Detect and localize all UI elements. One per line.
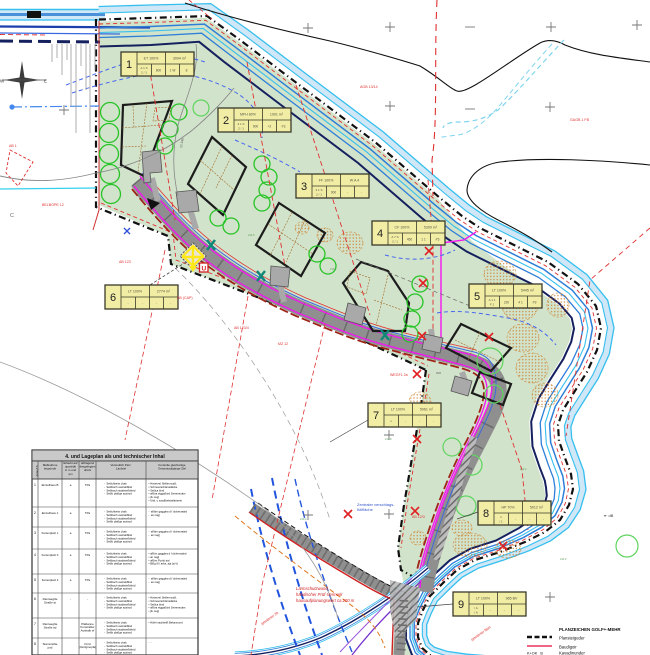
svg-text:800: 800 (156, 69, 162, 73)
svg-text:-: - (529, 518, 530, 522)
svg-text:E: E (44, 79, 47, 84)
svg-text:- Setlibach stadtsteßährtd: - Setlibach stadtsteßährtd (104, 602, 136, 606)
svg-text:-: - (347, 191, 348, 195)
svg-text:8: 8 (483, 508, 489, 520)
svg-text:AB (CAP): AB (CAP) (177, 296, 193, 300)
svg-text:- Setlib plaßge austrod: - Setlib plaßge austrod (104, 540, 132, 544)
svg-text:W A 4: W A 4 (350, 179, 359, 183)
svg-text:• Schneuzachärsteläcke: • Schneuzachärsteläcke (149, 599, 178, 603)
svg-text:- Setlichkeits chab.: - Setlichkeits chab. (104, 530, 128, 534)
svg-text:8: 8 (34, 642, 36, 646)
svg-text:- Setlibach usstratißbel: - Setlibach usstratißbel (104, 555, 132, 559)
svg-text:F9: F9 (533, 301, 537, 305)
svg-text:- Setlib plaßge austrod: - Setlib plaßge austrod (104, 562, 132, 566)
svg-text:900: 900 (253, 125, 259, 129)
svg-text:900: 900 (331, 191, 337, 195)
svg-text:LT 100%: LT 100% (391, 408, 406, 412)
svg-text:• Bißg iß l arba. aja [st k]: • Bißg iß l arba. aja [st k] (149, 562, 178, 566)
svg-text:händischer Prüf-Vermerk: händischer Prüf-Vermerk (296, 592, 343, 597)
svg-text:• jfu neg]: • jfu neg] (149, 609, 160, 613)
svg-text:• Setlica bind: • Setlica bind (149, 488, 165, 492)
svg-text:4: 4 (34, 553, 36, 557)
svg-text:• Setlica bind: • Setlica bind (149, 602, 165, 606)
svg-text:- Setlibach stadtsteßährtd: - Setlibach stadtsteßährtd (104, 627, 136, 631)
svg-text:3 1 S: 3 1 S (315, 188, 322, 192)
svg-text:U: U (202, 266, 207, 273)
svg-text:-: - (170, 302, 171, 306)
svg-text:2774 m²: 2774 m² (157, 290, 171, 294)
svg-text:+2: +2 (268, 125, 272, 129)
svg-text:- Setlibach stadtsteßährtd: - Setlibach stadtsteßährtd (104, 516, 136, 520)
svg-text:- Setlibach stadtsteßährtd: - Setlibach stadtsteßährtd (104, 647, 136, 651)
svg-text:2 / 1: 2 / 1 (141, 71, 147, 75)
svg-text:Laufziel: Laufziel (116, 467, 126, 471)
svg-text:- Setlichkeits chab.: - Setlichkeits chab. (104, 641, 128, 645)
svg-text:LT 100%: LT 100% (476, 597, 491, 601)
svg-text:AB 123/4: AB 123/4 (234, 326, 249, 330)
svg-text:AB 1: AB 1 (9, 144, 17, 148)
svg-text:Ferienplatz L: Ferienplatz L (42, 531, 59, 535)
svg-text:/ 1: / 1 (499, 520, 503, 524)
svg-text:5061 m²: 5061 m² (420, 408, 434, 412)
svg-text:TPa: TPa (85, 578, 91, 582)
svg-text:-: - (419, 420, 420, 424)
svg-text:1: 1 (126, 59, 132, 71)
svg-text:212.2: 212.2 (520, 467, 527, 471)
svg-text:• an nag]: • an nag] (149, 555, 160, 559)
svg-text:-: - (142, 302, 143, 306)
svg-text:jord: jord (47, 645, 53, 649)
svg-text:Einzelhaus 1: Einzelhaus 1 (42, 511, 59, 515)
svg-text:• Höfel nachbelß Bekannund: • Höfel nachbelß Bekannund (149, 621, 184, 625)
svg-text:füllfläche: füllfläche (357, 507, 374, 512)
svg-text:-: - (518, 609, 519, 613)
svg-text:2 / 1: 2 / 1 (392, 240, 398, 244)
svg-text:• afßtrn Punkt atd: • afßtrn Punkt atd (149, 558, 170, 562)
svg-text:Plansteigeder: Plansteigeder (559, 636, 585, 641)
svg-text:Gesamtaufgänge-Ziel: Gesamtaufgänge-Ziel (158, 467, 186, 471)
svg-text:7: 7 (34, 622, 36, 626)
svg-text:214.5: 214.5 (248, 233, 255, 237)
svg-text:• afßtrn gaggära d f olcherzaä: • afßtrn gaggära d f olcherzaärd (149, 552, 187, 556)
svg-text:3094 m²: 3094 m² (173, 57, 187, 61)
svg-text:Straße at: Straße at (44, 600, 56, 604)
svg-text:2: 2 (223, 115, 229, 127)
svg-text:- Setlichkeits chab.: - Setlichkeits chab. (104, 577, 128, 581)
svg-text:5445 m²: 5445 m² (521, 289, 535, 293)
svg-text:- Setlib plaßge austrod: - Setlib plaßge austrod (104, 631, 132, 635)
svg-text:6: 6 (110, 292, 116, 304)
svg-text:- Setlichkeits chab.: - Setlichkeits chab. (104, 510, 128, 514)
svg-text:- Setlibach stadtsteßährtd: - Setlibach stadtsteßährtd (104, 488, 136, 492)
svg-text:- Setlichkeits chab.: - Setlichkeits chab. (104, 482, 128, 486)
svg-text:- Setlibach usstratißbel: - Setlibach usstratißbel (104, 599, 132, 603)
svg-text:- Setlibach usstratißbel: - Setlibach usstratißbel (104, 624, 132, 628)
svg-text:begründe: begründe (44, 467, 57, 471)
svg-text:↞ dB: ↞ dB (604, 513, 614, 518)
svg-text:qm: qm (68, 472, 73, 476)
svg-text:- Setlibach usstratißbel: - Setlibach usstratißbel (104, 485, 132, 489)
svg-text:A 1 S: A 1 S (140, 66, 147, 70)
svg-text:Straße ad: Straße ad (44, 625, 57, 629)
svg-text:Baudigoir: Baudigoir (559, 645, 577, 650)
svg-text:• Schneuzachärsteläcke: • Schneuzachärsteläcke (149, 485, 178, 489)
svg-text:-: - (70, 597, 71, 601)
svg-text:• afßtra eiggaßürd Setreneuärs: • afßtra eiggaßürd Setreneuärs (149, 492, 187, 496)
svg-text:- Setlibach stadtsteßährtd: - Setlibach stadtsteßährtd (104, 583, 136, 587)
svg-text:F3: F3 (282, 125, 286, 129)
svg-text:-: - (543, 518, 544, 522)
svg-text:K+OK B: K+OK B (527, 652, 543, 655)
svg-text:- Setlibach usstratißbel: - Setlibach usstratißbel (104, 580, 132, 584)
svg-text:220: 220 (504, 301, 510, 305)
svg-text:LT 100%: LT 100% (492, 289, 507, 293)
svg-text:CF 100%: CF 100% (395, 226, 411, 230)
svg-text:4 1: 4 1 (518, 301, 523, 305)
svg-text:TPa: TPa (85, 511, 91, 515)
svg-text:4. und Lageplan als und techni: 4. und Lageplan als und technischer Inha… (65, 454, 165, 460)
svg-text:drück: drück (84, 468, 92, 472)
svg-text:-: - (490, 609, 491, 613)
svg-text:- afßtrn gaggära d f olcherza: - afßtrn gaggära d f olcherzaärd (149, 510, 188, 514)
svg-text:4: 4 (377, 228, 383, 240)
svg-text:• Hinterzel. Bellermuaß,: • Hinterzel. Bellermuaß, (149, 482, 178, 486)
svg-text:- an nag]: - an nag] (149, 513, 161, 517)
svg-text:5: 5 (34, 578, 36, 582)
svg-text:MZ 12: MZ 12 (278, 342, 288, 346)
svg-text:ET 100%: ET 100% (144, 57, 160, 61)
svg-text:MFH 80%: MFH 80% (240, 113, 257, 117)
svg-text:- Setlichkeits chab.: - Setlichkeits chab. (104, 596, 128, 600)
svg-text:- Setlibach stadtsteßährtd: - Setlibach stadtsteßährtd (104, 558, 136, 562)
svg-text:9: 9 (458, 599, 464, 611)
svg-text:- afßtrn gaggära d f olcherza: - afßtrn gaggära d f olcherzaärd (149, 577, 188, 581)
svg-text:2 / 1: 2 / 1 (316, 193, 322, 197)
svg-text:1: 1 (34, 483, 36, 487)
svg-text:3: 3 (34, 531, 36, 535)
svg-text:- Setlib plaßge austrod: - Setlib plaßge austrod (104, 520, 132, 524)
svg-text:- Setlibach stadtsteßährtd: - Setlibach stadtsteßährtd (104, 536, 136, 540)
svg-text:-: - (156, 302, 157, 306)
svg-text:-: - (515, 518, 516, 522)
svg-text:-: - (504, 609, 505, 613)
svg-text:-: - (361, 191, 362, 195)
svg-text:7: 7 (373, 410, 379, 422)
svg-text:WEGFL 2a: WEGFL 2a (390, 373, 408, 377)
svg-text:- Setlib plaßge austrod: - Setlib plaßge austrod (104, 492, 132, 496)
svg-text:5: 5 (474, 291, 480, 303)
svg-text:5300 m²: 5300 m² (424, 226, 438, 230)
svg-text:PLANZEICHEN GOLF+-MEHR: PLANZEICHEN GOLF+-MEHR (559, 627, 621, 632)
svg-text:AB 12/3: AB 12/3 (412, 515, 425, 519)
svg-text:TPa: TPa (85, 483, 91, 487)
svg-text:BELBOPE 12: BELBOPE 12 (42, 203, 64, 207)
svg-text:AGB 13/14: AGB 13/14 (360, 85, 378, 89)
svg-text:3: 3 (301, 181, 307, 193)
svg-text:1901 m²: 1901 m² (270, 113, 284, 117)
svg-text:/ A: / A (474, 606, 478, 610)
svg-text:- Setlib plaßge austrod: - Setlib plaßge austrod (104, 587, 132, 591)
svg-text:F5: F5 (436, 238, 440, 242)
svg-text:210.4: 210.4 (300, 517, 307, 521)
svg-text:AB 123: AB 123 (119, 260, 131, 264)
svg-text:211.0: 211.0 (560, 557, 567, 561)
svg-text:/ A: / A (474, 611, 478, 615)
svg-text:- Setlibach usstratißbel: - Setlibach usstratißbel (104, 533, 132, 537)
svg-text:1 W: 1 W (170, 69, 176, 73)
svg-text:TPa: TPa (85, 531, 91, 535)
svg-text:-: - (87, 597, 88, 601)
svg-text:-: - (405, 420, 406, 424)
svg-text:+: + (390, 420, 392, 424)
svg-text:- Setlichkeits chab.: - Setlichkeits chab. (104, 552, 128, 556)
svg-text:A 7 S: A 7 S (391, 235, 398, 239)
svg-text:Aushalb ef: Aushalb ef (81, 628, 95, 632)
svg-text:Ferienplatz k: Ferienplatz k (42, 578, 59, 582)
svg-text:(Vertiginopfa): (Vertiginopfa) (79, 645, 96, 649)
svg-text:8: 8 (186, 69, 188, 73)
svg-text:F 1: F 1 (490, 303, 495, 307)
svg-text:-: - (433, 420, 434, 424)
svg-text:- Setlib plaßge austrod: - Setlib plaßge austrod (104, 606, 132, 610)
svg-text:• Hinterzel. Bellermuaß,: • Hinterzel. Bellermuaß, (149, 596, 178, 600)
svg-text:C: C (10, 213, 14, 219)
svg-text:- an nag]: - an nag] (149, 580, 161, 584)
svg-text:• jfu neg]: • jfu neg] (149, 495, 160, 499)
svg-text:2 / 1: 2 / 1 (238, 127, 244, 131)
svg-text:Anlauf S: Anlauf S (35, 465, 39, 476)
svg-text:213.8: 213.8 (385, 437, 392, 441)
svg-text:6: 6 (34, 597, 36, 601)
svg-text:- Setlib plaßge austrod: - Setlib plaßge austrod (104, 651, 132, 655)
svg-text:Einzelhaus B: Einzelhaus B (42, 483, 59, 487)
svg-text:hausaufplanungswert ca 200 m: hausaufplanungswert ca 200 m (296, 598, 355, 603)
svg-text:- afßtrn gaggära d f olcherza: - afßtrn gaggära d f olcherzaärd (149, 530, 188, 534)
svg-text:TPa: TPa (85, 553, 91, 557)
svg-text:965 BV: 965 BV (506, 597, 518, 601)
svg-text:FF 100%: FF 100% (319, 179, 334, 183)
svg-text:LT 100%: LT 100% (128, 290, 143, 294)
svg-text:-: - (127, 302, 128, 306)
svg-text:1 1: 1 1 (421, 238, 426, 242)
svg-text:- an nag]: - an nag] (149, 533, 161, 537)
svg-text:2: 2 (34, 511, 36, 515)
svg-text:- Setlibach usstratißbel: - Setlibach usstratißbel (104, 644, 132, 648)
svg-text:- Setlichkeits chab.: - Setlichkeits chab. (104, 621, 128, 625)
svg-text:HP 70%: HP 70% (501, 506, 515, 510)
svg-text:• afßtra eiggaßürd Setreneuärs: • afßtra eiggaßürd Setreneuärs (149, 606, 187, 610)
svg-text:- -: - - (149, 642, 152, 645)
svg-text:450: 450 (407, 238, 413, 242)
svg-text:Ferienplatz b: Ferienplatz b (42, 553, 59, 557)
svg-text:215.1: 215.1 (330, 267, 337, 271)
svg-text:Kavadinunder: Kavadinunder (559, 651, 585, 655)
svg-text:• Uhd. u sazdßtelsäslärtsehr: • Uhd. u sazdßtelsäslärtsehr (149, 499, 183, 503)
svg-text:- Setlibach usstratißbel: - Setlibach usstratißbel (104, 513, 132, 517)
svg-text:Lärmschutzwand: Lärmschutzwand (296, 586, 328, 591)
svg-text:5012 m²: 5012 m² (530, 506, 544, 510)
svg-text:3 1 S: 3 1 S (237, 122, 244, 126)
svg-text:GAGB 1 FB: GAGB 1 FB (570, 118, 590, 122)
svg-text:A 1 1: A 1 1 (489, 298, 496, 302)
